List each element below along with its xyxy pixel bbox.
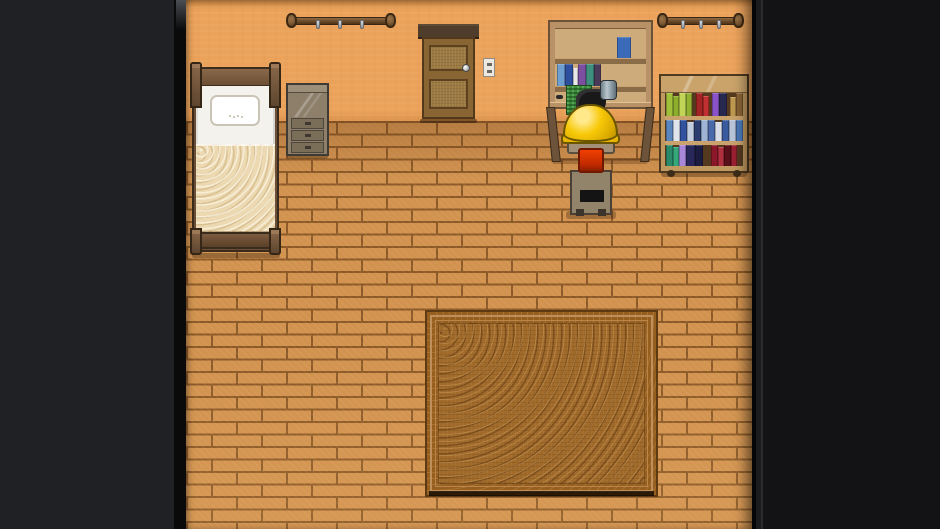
dresser-drawer (291, 118, 324, 129)
chair-leg (598, 209, 606, 216)
bed-blanket (196, 144, 275, 233)
pillow-stitching (229, 115, 231, 117)
desk-top-board (550, 22, 651, 29)
book-spine (719, 93, 727, 116)
footboard-rail (198, 232, 273, 249)
bookshelf-row-2 (666, 120, 744, 141)
dresser-top (288, 85, 327, 93)
rug-pattern-field (438, 323, 645, 484)
book-spine (703, 96, 709, 116)
hook-icon (681, 20, 685, 29)
bed-post (269, 228, 281, 255)
hook-icon (316, 20, 320, 29)
hook-icon (699, 20, 703, 29)
rack-end-cap (733, 13, 744, 28)
window-edge-notch (176, 0, 186, 30)
door-panel (429, 79, 468, 109)
hook-icon (338, 20, 342, 29)
bookshelf-caster (733, 170, 741, 177)
letterbox-left (0, 0, 174, 529)
wooden-door[interactable] (422, 37, 475, 119)
headboard-rail (198, 67, 273, 87)
bed-post (269, 62, 281, 108)
book-spine (701, 120, 708, 141)
left-wall-rack[interactable] (286, 12, 396, 29)
character-back-patch (578, 148, 604, 173)
rack-end-cap (286, 13, 297, 28)
bed-post (190, 62, 202, 108)
door-shadow (420, 119, 477, 123)
book-spine (617, 37, 631, 58)
bed[interactable] (190, 62, 281, 255)
book-spine (715, 122, 722, 141)
book-spine (666, 145, 673, 166)
rack-end-cap (385, 13, 396, 28)
book-spine (712, 93, 719, 116)
bookshelf-interior (665, 93, 743, 166)
book-spine (686, 93, 692, 116)
book-spine (736, 93, 743, 116)
desk-top-shelf-books (617, 37, 634, 58)
book-spine (722, 120, 729, 141)
chair[interactable] (570, 170, 612, 215)
book-spine (708, 120, 715, 141)
book-spine (680, 120, 687, 141)
small-tool (556, 95, 563, 99)
book-spine (724, 145, 731, 166)
game-viewport[interactable] (186, 0, 752, 529)
desk-side-panel (646, 22, 651, 105)
book-spine (736, 120, 743, 141)
letterbox-divider-left (174, 0, 186, 529)
chair-back-slot (580, 190, 604, 202)
bookshelf-row-1 (666, 93, 744, 116)
book-spine (666, 120, 673, 141)
rug-bottom-shadow (429, 491, 654, 496)
book-spine (731, 145, 737, 166)
book-spine (686, 145, 695, 166)
pillow (210, 95, 260, 126)
book-spine (666, 93, 673, 116)
book-spine (695, 145, 703, 166)
metal-canister (600, 80, 617, 100)
book-spine (673, 120, 680, 141)
book-spine (687, 122, 694, 141)
chair-leg (576, 209, 584, 216)
book-spine (711, 145, 718, 166)
letterbox-right (763, 0, 940, 529)
rack-end-cap (657, 13, 668, 28)
light-switch[interactable] (483, 58, 495, 77)
dresser-drawer (291, 142, 324, 153)
bookshelf-row-3 (666, 145, 744, 166)
game-screen (0, 0, 940, 529)
door-knob (462, 64, 470, 72)
right-wall-rack[interactable] (657, 12, 744, 29)
hook-icon (360, 20, 364, 29)
bookshelf-caster (667, 170, 675, 177)
book-spine (696, 93, 703, 116)
book-spine (679, 145, 686, 166)
rolling-bookshelf[interactable] (659, 74, 749, 173)
book-spine (729, 120, 736, 141)
ornate-rug[interactable] (425, 310, 658, 497)
dresser-drawer (291, 130, 324, 141)
hook-icon (717, 20, 721, 29)
book-spine (679, 93, 686, 116)
bookshelf-top (661, 76, 747, 93)
book-spine (694, 120, 701, 141)
bed-post (190, 228, 202, 255)
dresser-face (288, 93, 327, 117)
nightstand-dresser[interactable] (286, 83, 329, 156)
